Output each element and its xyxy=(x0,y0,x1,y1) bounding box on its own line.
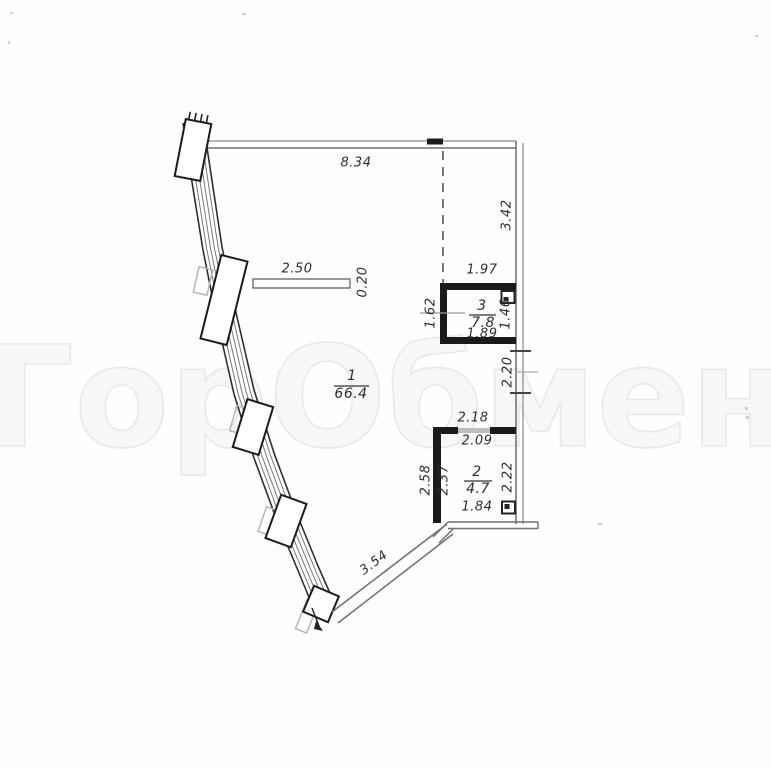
vent-shaft-room2 xyxy=(502,502,515,514)
top-wall xyxy=(197,139,516,149)
dim-room2-door-inner: 2.09 xyxy=(462,434,493,449)
dim-room2-door-outer: 2.18 xyxy=(458,411,489,426)
dim-right-height: 3.42 xyxy=(500,200,515,231)
room1-number: 1 xyxy=(347,368,356,384)
dim-corridor-right: 2.20 xyxy=(501,357,516,388)
watermark-text: ГорОбмен xyxy=(0,317,771,480)
dim-room2-left-outer: 2.58 xyxy=(419,465,434,496)
room2-number: 2 xyxy=(472,464,481,480)
dim-room3-left: 1.62 xyxy=(424,298,439,329)
dim-shelf-depth: 0.20 xyxy=(356,267,371,298)
wall-tick xyxy=(427,139,443,145)
room3-number: 3 xyxy=(477,298,486,314)
dim-room3-top: 1.97 xyxy=(467,263,498,278)
floor-plan: ГорОбмен xyxy=(0,0,771,768)
dim-room3-right: 1.46 xyxy=(499,299,514,330)
room3-area: 7.8 xyxy=(471,315,495,331)
room2-area: 4.7 xyxy=(466,481,490,497)
dim-shelf-width: 2.50 xyxy=(282,262,313,277)
dim-room2-left-inner: 2.37 xyxy=(437,465,452,496)
room1-area: 66.4 xyxy=(334,386,367,402)
dim-top-width: 8.34 xyxy=(341,156,372,171)
counter-shelf xyxy=(253,279,350,288)
bottom-diagonal-wall xyxy=(332,524,453,623)
dim-room2-right: 2.22 xyxy=(501,462,516,493)
dim-room2-bottom: 1.84 xyxy=(462,500,493,515)
floor-plan-linework: ГорОбмен xyxy=(0,0,771,768)
door-opening xyxy=(458,428,490,433)
